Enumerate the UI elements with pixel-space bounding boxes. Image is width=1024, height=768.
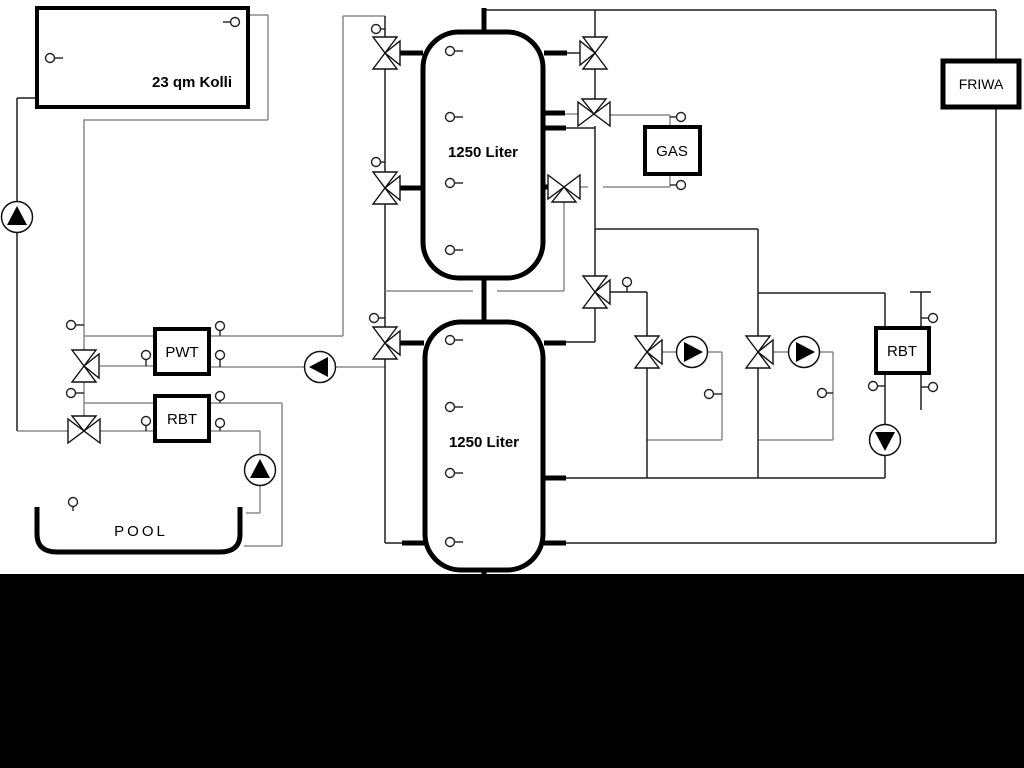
pump-icon [677, 337, 708, 368]
pwt-label: PWT [165, 344, 198, 361]
sensor-icon [216, 419, 225, 432]
rbt-right-label: RBT [887, 343, 917, 360]
three-way-valve-icon [580, 37, 607, 69]
sensor-bulb [446, 113, 455, 122]
hydraulic-schematic: 23 qm Kolli 1250 Liter 1250 Liter PWT RB… [0, 0, 1024, 768]
three-way-valve-icon [72, 350, 99, 382]
sensor-icon [142, 417, 151, 432]
rbt-left-label: RBT [167, 411, 197, 428]
pump-icon [2, 202, 33, 233]
sensor-icon [372, 158, 386, 167]
sensor-bulb [216, 322, 225, 331]
sensor-icon [216, 392, 225, 404]
sensor-bulb [623, 278, 632, 287]
sensor-icon [818, 389, 834, 398]
sensor-icon [216, 351, 225, 368]
sensor-icon [869, 382, 886, 391]
friwa-label: FRIWA [959, 76, 1004, 92]
sensor-bulb [446, 538, 455, 547]
buffer-tank-bottom-label: 1250 Liter [449, 434, 519, 451]
three-way-valve-icon [548, 175, 580, 202]
sensor-bulb [69, 498, 78, 507]
sensor-bulb [46, 54, 55, 63]
sensor-icon [670, 181, 686, 190]
sensor-bulb [216, 419, 225, 428]
three-way-valve-icon [578, 99, 610, 126]
schematic-canvas: 23 qm Kolli 1250 Liter 1250 Liter PWT RB… [0, 0, 1024, 768]
gas-boiler-label: GAS [656, 143, 688, 160]
pump-icon [789, 337, 820, 368]
three-way-valve-icon [373, 172, 400, 204]
sensor-icon [372, 25, 386, 34]
pump-icon [245, 455, 276, 486]
sensor-bulb [446, 246, 455, 255]
sensor-icon [705, 390, 723, 399]
sensor-icon [69, 498, 78, 512]
sensor-icon [370, 314, 386, 323]
sensor-icon [67, 321, 85, 330]
buffer-tank-top-label: 1250 Liter [448, 144, 518, 161]
sensor-bulb [446, 179, 455, 188]
sensor-bulb [677, 113, 686, 122]
sensor-icon [216, 322, 225, 337]
sensor-bulb [818, 389, 827, 398]
sensor-bulb [67, 321, 76, 330]
sensor-bulb [446, 47, 455, 56]
sensor-icon [921, 383, 938, 392]
sensor-bulb [216, 351, 225, 360]
sensor-bulb [705, 390, 714, 399]
sensor-bulb [67, 389, 76, 398]
pool-label: POOL [114, 523, 168, 540]
sensor-bulb [216, 392, 225, 401]
sensor-bulb [869, 382, 878, 391]
sensor-bulb [231, 18, 240, 27]
three-way-valve-icon [373, 327, 400, 359]
sensor-bulb [372, 158, 381, 167]
bottom-black-band [0, 574, 1024, 768]
sensor-icon [67, 389, 85, 398]
sensor-bulb [677, 181, 686, 190]
three-way-valve-icon [583, 276, 610, 308]
sensor-bulb [370, 314, 379, 323]
sensor-icon [921, 314, 938, 323]
sensor-bulb [142, 417, 151, 426]
pump-icon [305, 352, 336, 383]
three-way-valve-icon [635, 336, 662, 368]
component-boxes-layer [37, 8, 1019, 570]
sensor-icon [142, 351, 151, 367]
pump-icon [870, 425, 901, 456]
sensor-bulb [142, 351, 151, 360]
three-way-valve-icon [68, 416, 100, 443]
sensor-icon [670, 113, 686, 122]
sensor-bulb [446, 403, 455, 412]
sensor-icon [623, 278, 632, 293]
sensor-bulb [446, 336, 455, 345]
sensor-bulb [929, 314, 938, 323]
sensor-bulb [446, 469, 455, 478]
solar-collector-box [37, 8, 248, 107]
three-way-valve-icon [373, 37, 400, 69]
three-way-valve-icon [746, 336, 773, 368]
sensor-bulb [372, 25, 381, 34]
sensor-bulb [929, 383, 938, 392]
solar-collector-label: 23 qm Kolli [152, 74, 232, 91]
